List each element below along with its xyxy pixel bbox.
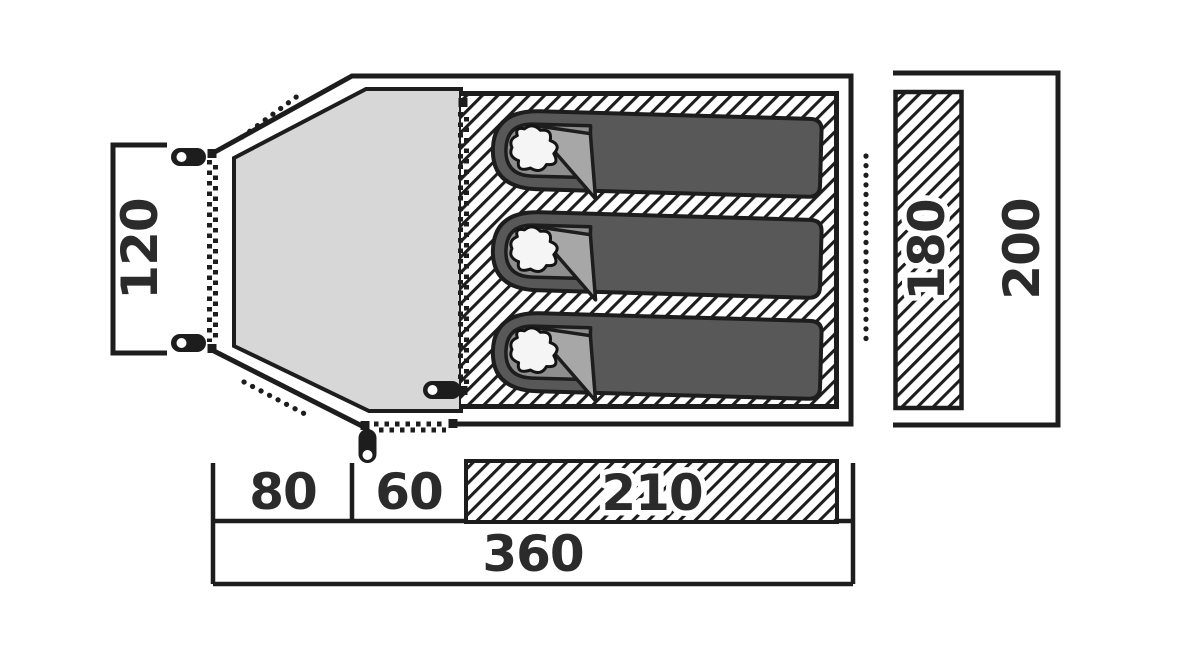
sleeping-bag-icon [492,211,822,306]
tent-floorplan-diagram: 120 [0,0,1200,666]
tent-floorplan-page: 120 [0,0,1200,666]
tent-peg-icon [423,381,461,399]
label-door-depth: 60 [375,463,443,521]
label-porch-opening: 120 [111,198,169,299]
label-porch-depth: 80 [249,463,317,521]
label-inner-width: 180 [898,199,956,300]
label-total-width: 200 [993,198,1051,299]
tent-peg-icon [171,148,206,166]
label-inner-length: 210 [601,464,702,522]
tent-peg-icon [359,429,377,463]
sleeping-bag-icon [492,110,822,205]
sleeping-bag-icon [492,312,822,407]
label-total-length: 360 [482,525,583,583]
tent-peg-icon [171,334,206,352]
